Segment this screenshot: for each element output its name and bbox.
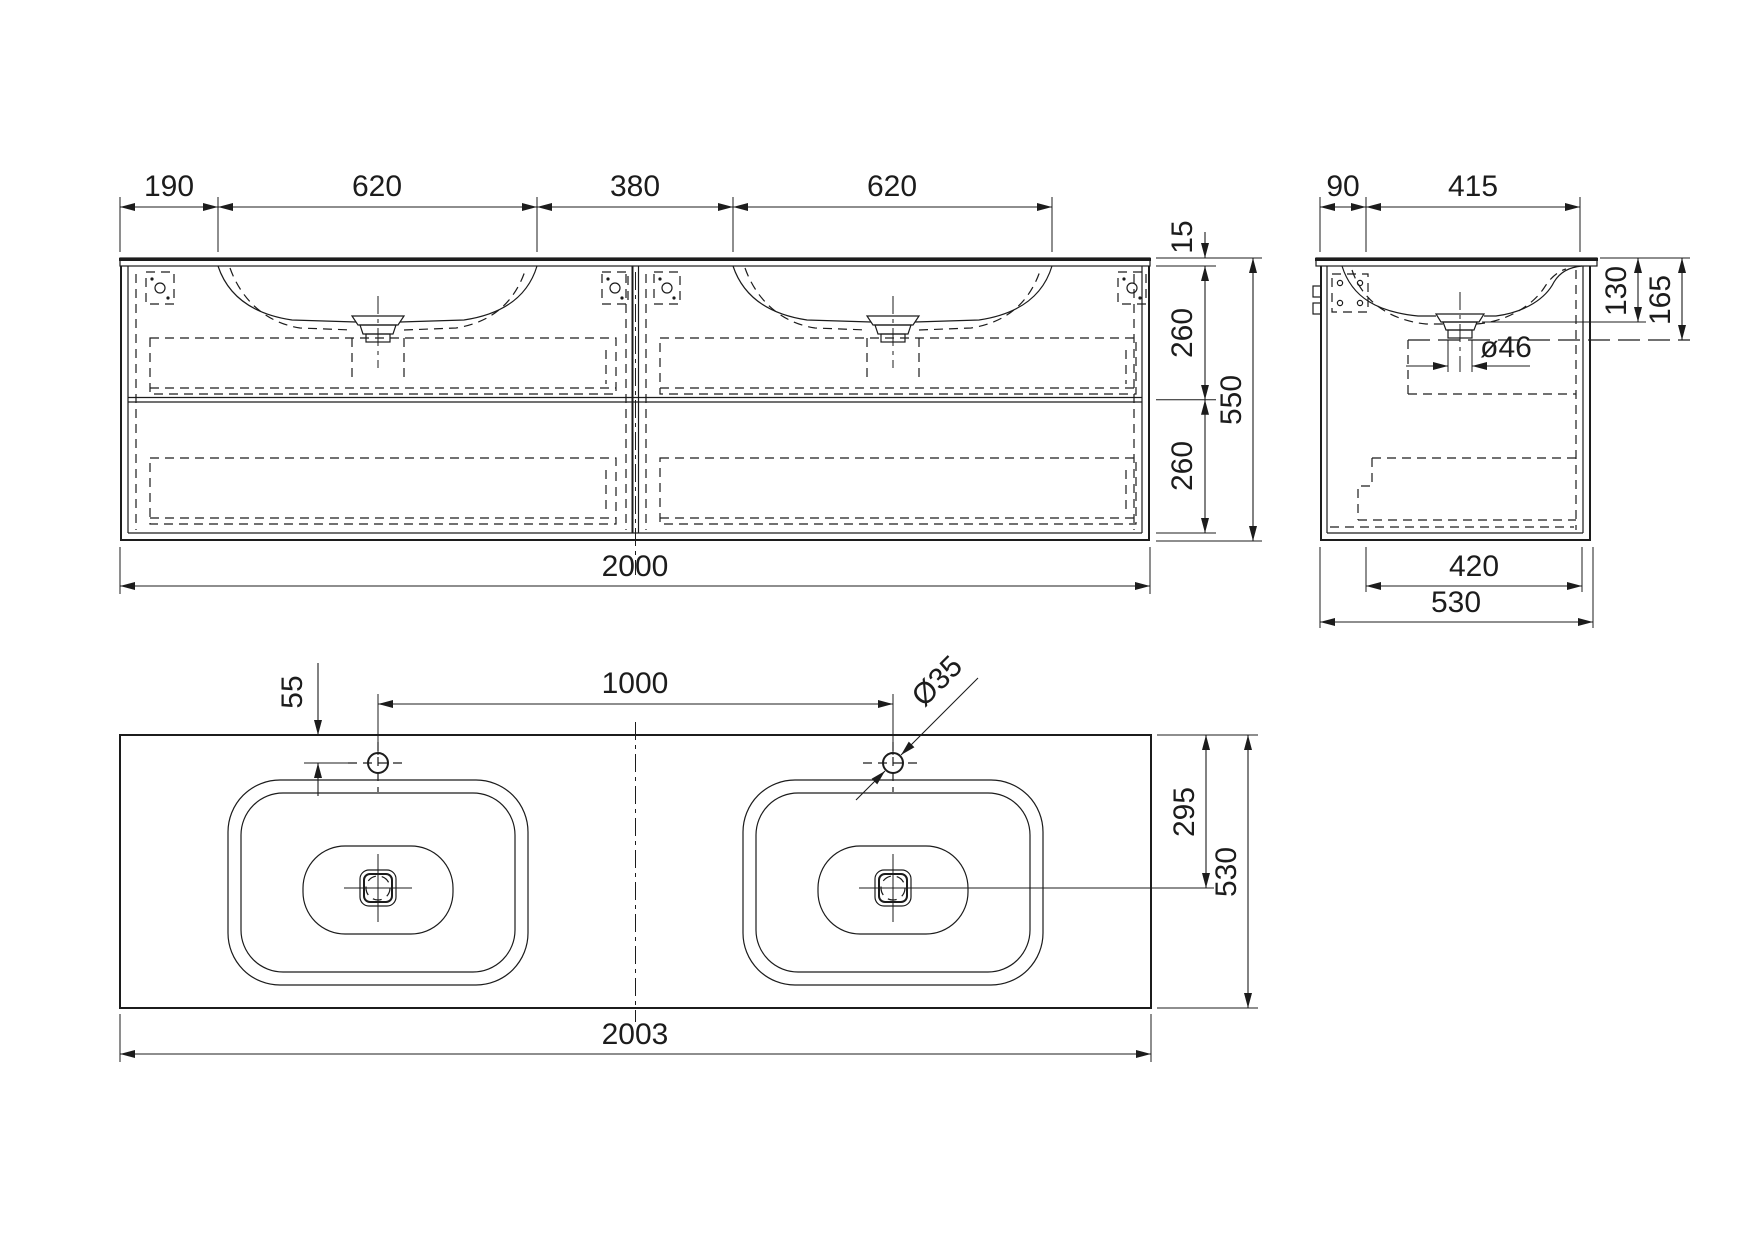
front-right-dimensions: 15 260 260 550 xyxy=(1156,220,1262,541)
plan-bottom-dimension: 2003 xyxy=(120,1014,1151,1062)
dim-label-380: 380 xyxy=(610,170,660,203)
dim-label-190: 190 xyxy=(144,170,194,203)
dim-label-530-plan: 530 xyxy=(1210,847,1243,897)
plan-hole-diameter-leader: Ø35 xyxy=(856,650,978,800)
plan-right-dimensions: 295 530 xyxy=(927,735,1258,1008)
dim-label-415: 415 xyxy=(1448,170,1498,203)
dim-label-260-upper: 260 xyxy=(1166,308,1199,358)
side-right-dimensions: 130 165 xyxy=(1600,258,1690,340)
plan-55-dimension: 55 xyxy=(276,663,350,796)
plan-right-basin xyxy=(743,780,1043,985)
dim-label-550: 550 xyxy=(1215,375,1248,425)
dim-label-620-left: 620 xyxy=(352,170,402,203)
dim-label-15: 15 xyxy=(1166,220,1199,253)
bracket-icon xyxy=(602,272,628,304)
dim-label-90: 90 xyxy=(1326,170,1359,203)
plan-view: 55 1000 Ø35 295 530 2003 xyxy=(120,650,1258,1062)
dim-label-hole-diameter: Ø35 xyxy=(906,650,969,713)
side-bottom-dimensions: 420 530 xyxy=(1320,547,1593,628)
plan-1000-dimension: 1000 xyxy=(378,667,893,755)
dim-label-2003: 2003 xyxy=(602,1018,669,1051)
dim-label-530-side: 530 xyxy=(1431,586,1481,619)
dim-label-55: 55 xyxy=(276,675,309,708)
front-countertop xyxy=(119,258,1151,266)
front-top-dimensions: 190 620 380 620 xyxy=(120,170,1052,252)
dim-label-drain-diameter: ø46 xyxy=(1480,331,1532,364)
side-top-dimensions: 90 415 xyxy=(1320,170,1580,252)
dim-label-260-lower: 260 xyxy=(1166,441,1199,491)
bracket-icon xyxy=(146,272,174,304)
bracket-icon xyxy=(654,272,680,304)
side-view: ø46 90 415 130 165 420 530 xyxy=(1313,170,1690,628)
dim-label-130: 130 xyxy=(1600,266,1633,316)
side-drain-dimension: ø46 xyxy=(1406,331,1532,372)
dim-label-1000: 1000 xyxy=(602,667,669,700)
plan-left-basin xyxy=(228,780,528,985)
technical-drawing-page: 190 620 380 620 15 260 260 550 2000 xyxy=(0,0,1754,1240)
front-right-sink-bowl xyxy=(733,266,1052,368)
dim-label-2000: 2000 xyxy=(602,550,669,583)
dim-label-420: 420 xyxy=(1449,550,1499,583)
front-view: 190 620 380 620 15 260 260 550 2000 xyxy=(119,170,1262,594)
front-bottom-dimension: 2000 xyxy=(120,547,1150,594)
front-left-sink-bowl xyxy=(218,266,537,368)
side-countertop xyxy=(1315,258,1598,266)
side-carcass xyxy=(1321,266,1590,540)
dim-label-295: 295 xyxy=(1168,787,1201,837)
vanity-cabinet-drawing: 190 620 380 620 15 260 260 550 2000 xyxy=(0,0,1754,1240)
front-carcass xyxy=(121,266,1149,575)
side-sink-bowl xyxy=(1342,266,1582,372)
plan-countertop-outline xyxy=(120,735,1151,1008)
dim-label-620-right: 620 xyxy=(867,170,917,203)
dim-label-165: 165 xyxy=(1644,275,1677,325)
